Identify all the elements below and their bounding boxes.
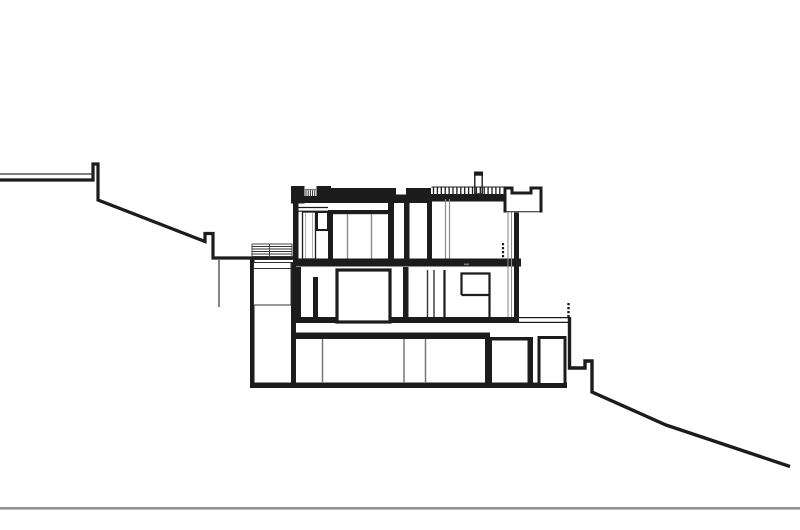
roof-raised-slab-left: [331, 188, 396, 203]
upper-room1-lintel-bar: [328, 210, 394, 214]
upper-wall-stub: [317, 212, 328, 230]
basement-room1-top-edge: [485, 337, 533, 341]
basement-room1-left-wall: [485, 337, 492, 384]
middle-window-nook: [462, 274, 490, 323]
terrain-downhill: [570, 317, 791, 467]
left-room-right-wall: [291, 262, 296, 387]
right-roof-parapet: [505, 188, 541, 213]
basement-room2: [539, 338, 565, 385]
left-parapet-block: [291, 186, 305, 204]
basement-room1-right-wall: [528, 337, 534, 384]
upper-room2-left-wall: [404, 199, 410, 264]
roof-terrace-slab: [431, 194, 506, 202]
middle-floor-wall: [403, 267, 409, 322]
roof-parapet-block-b: [317, 186, 332, 197]
middle-room-window: [337, 270, 390, 322]
upper-left-wall: [293, 203, 299, 259]
upper-door-shaft: [303, 212, 316, 259]
house-section-drawing: [0, 0, 800, 530]
upper-room1-right-wall: [388, 203, 394, 264]
site-baseline: [0, 507, 800, 510]
pocket-wall-left: [296, 267, 301, 322]
upper-room2-mid-wall: [427, 199, 432, 264]
pocket-wall-right: [313, 277, 318, 322]
roof-slab-under-ticks: [305, 196, 332, 203]
right-facade-wall: [514, 212, 519, 322]
lower-floor-slab: [291, 333, 490, 340]
foundation-slab: [250, 383, 567, 389]
architectural-section-canvas: [0, 0, 800, 530]
dimension-mark: [464, 264, 469, 266]
